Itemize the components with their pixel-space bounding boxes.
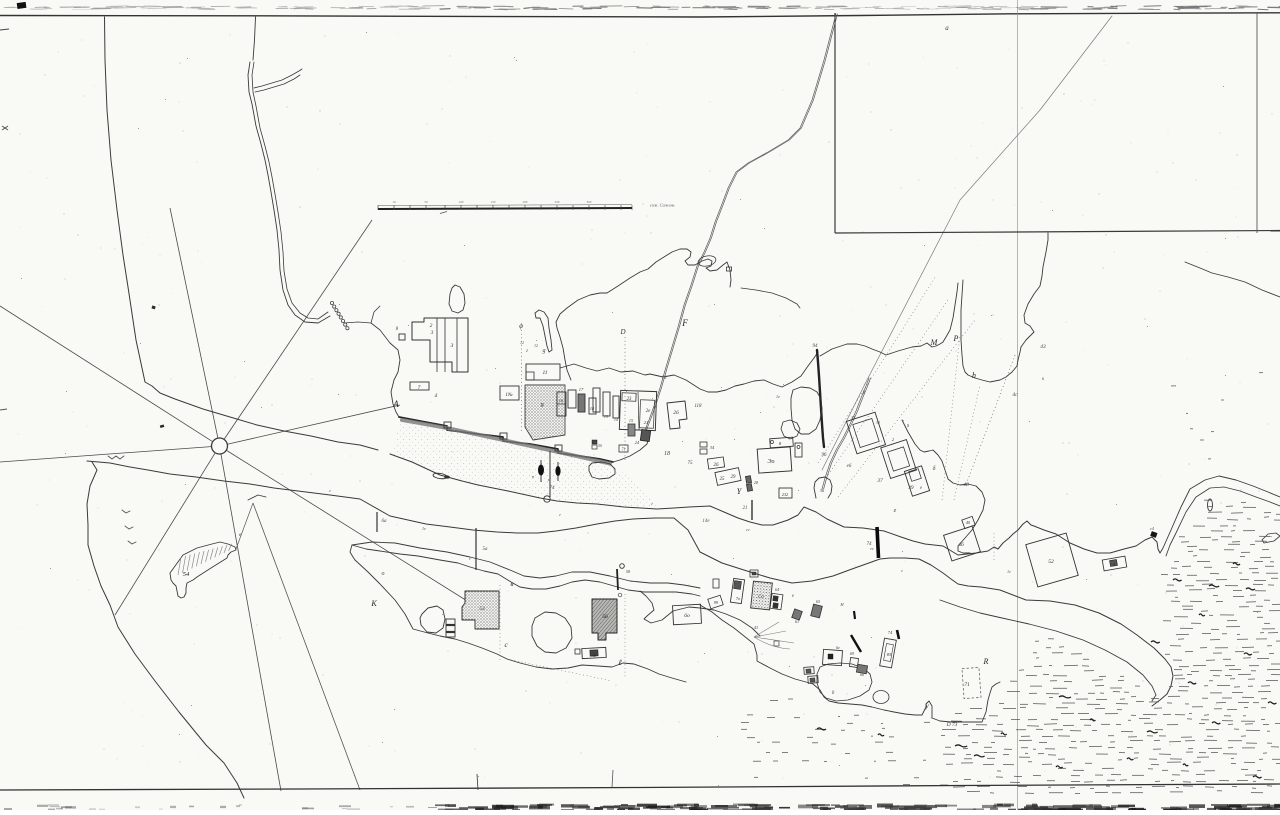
svg-text:25: 25 (720, 477, 725, 482)
svg-text:6a: 6a (382, 519, 388, 524)
svg-text:232: 232 (782, 492, 788, 497)
svg-text:е6: е6 (847, 464, 852, 469)
svg-text:D: D (619, 328, 625, 336)
svg-text:1№: 1№ (505, 392, 513, 398)
svg-text:6е: 6е (836, 645, 840, 650)
svg-text:26: 26 (714, 463, 720, 468)
svg-text:48: 48 (592, 653, 597, 658)
svg-text:Co: Co (758, 595, 764, 600)
svg-text:34: 34 (710, 445, 715, 450)
svg-text:21: 21 (644, 420, 649, 425)
svg-text:6o: 6o (684, 613, 690, 619)
svg-text:е4: е4 (1150, 526, 1154, 531)
svg-text:е: е (651, 501, 653, 506)
svg-text:18: 18 (664, 451, 670, 457)
svg-text:94: 94 (813, 344, 819, 349)
svg-text:71: 71 (622, 448, 626, 452)
svg-text:ее: ее (746, 527, 750, 532)
svg-text:a: a (945, 24, 949, 32)
svg-text:o: o (382, 571, 385, 577)
svg-text:50: 50 (424, 200, 428, 204)
svg-text:83: 83 (887, 652, 892, 657)
svg-text:саж. Сажень: саж. Сажень (650, 203, 675, 208)
svg-text:43: 43 (754, 625, 758, 630)
svg-text:е: е (559, 512, 561, 517)
svg-text:250: 250 (555, 200, 560, 204)
svg-text:1е: 1е (1007, 569, 1011, 574)
svg-text:65: 65 (816, 599, 820, 604)
svg-text:300: 300 (587, 200, 592, 204)
svg-text:14е: 14е (702, 519, 710, 524)
svg-text:M: M (930, 338, 939, 347)
svg-text:29: 29 (731, 475, 736, 480)
svg-text:96: 96 (822, 453, 828, 458)
svg-text:50: 50 (598, 444, 602, 448)
svg-text:ϕ: ϕ (519, 322, 523, 330)
svg-text:å: å (435, 392, 438, 399)
svg-text:h: h (972, 371, 976, 380)
svg-text:1е: 1е (776, 394, 780, 399)
svg-text:21: 21 (743, 506, 748, 511)
svg-text:9: 9 (541, 403, 544, 409)
svg-text:3: 3 (450, 343, 454, 349)
svg-text:56: 56 (602, 614, 608, 620)
svg-text:4c: 4c (1012, 391, 1018, 398)
svg-text:13: 13 (604, 414, 608, 419)
svg-text:14: 14 (614, 417, 618, 422)
svg-text:53: 53 (479, 606, 485, 612)
svg-text:74: 74 (550, 486, 556, 491)
svg-text:в: в (510, 580, 513, 588)
svg-text:13: 13 (662, 376, 668, 381)
svg-text:Эo: Эo (768, 459, 775, 465)
svg-text:17: 17 (579, 387, 584, 392)
svg-text:е: е (863, 390, 866, 396)
svg-text:118: 118 (694, 404, 702, 409)
svg-text:7: 7 (418, 385, 421, 391)
svg-text:37: 37 (876, 478, 883, 484)
svg-text:43: 43 (1040, 343, 1046, 350)
svg-text:200: 200 (523, 200, 528, 204)
svg-text:г: г (526, 349, 528, 354)
svg-text:K: K (370, 599, 377, 608)
svg-text:4: 4 (1113, 562, 1115, 567)
svg-text:5a: 5a (483, 547, 489, 552)
svg-text:24: 24 (635, 440, 640, 445)
svg-text:12: 12 (534, 343, 538, 348)
svg-text:54: 54 (183, 571, 190, 578)
svg-text:ее: ее (870, 546, 874, 551)
svg-text:61: 61 (795, 619, 799, 624)
svg-text:g: g (543, 348, 546, 354)
svg-text:е: е (901, 568, 903, 573)
svg-text:е: е (469, 556, 471, 561)
svg-text:23: 23 (627, 397, 632, 402)
svg-text:12: 12 (520, 340, 524, 345)
svg-text:10: 10 (392, 200, 396, 204)
svg-text:е: е (894, 508, 897, 514)
svg-text:26: 26 (673, 410, 679, 416)
svg-text:A: A (392, 399, 399, 409)
svg-text:D 73: D 73 (946, 722, 958, 728)
svg-text:46: 46 (958, 541, 964, 548)
svg-text:7o: 7o (736, 596, 740, 601)
svg-text:16: 16 (559, 398, 564, 403)
svg-text:71: 71 (964, 682, 970, 688)
svg-text:75: 75 (688, 461, 694, 466)
svg-text:74: 74 (888, 630, 893, 635)
svg-text:F: F (681, 318, 688, 328)
svg-text:е: е (329, 488, 331, 493)
svg-text:31: 31 (876, 420, 880, 425)
svg-text:δ: δ (933, 466, 936, 472)
svg-text:2: 2 (430, 323, 433, 329)
svg-text:15: 15 (629, 418, 633, 423)
svg-text:11: 11 (542, 370, 547, 376)
svg-text:R: R (983, 657, 989, 666)
svg-text:1е: 1е (422, 526, 426, 531)
svg-text:52: 52 (1048, 559, 1054, 565)
svg-text:39: 39 (909, 486, 915, 491)
svg-text:64: 64 (775, 587, 779, 592)
svg-text:150: 150 (491, 200, 496, 204)
svg-text:31: 31 (851, 415, 855, 420)
svg-text:48: 48 (963, 481, 969, 488)
svg-text:P: P (953, 334, 959, 343)
svg-text:100: 100 (459, 200, 464, 204)
